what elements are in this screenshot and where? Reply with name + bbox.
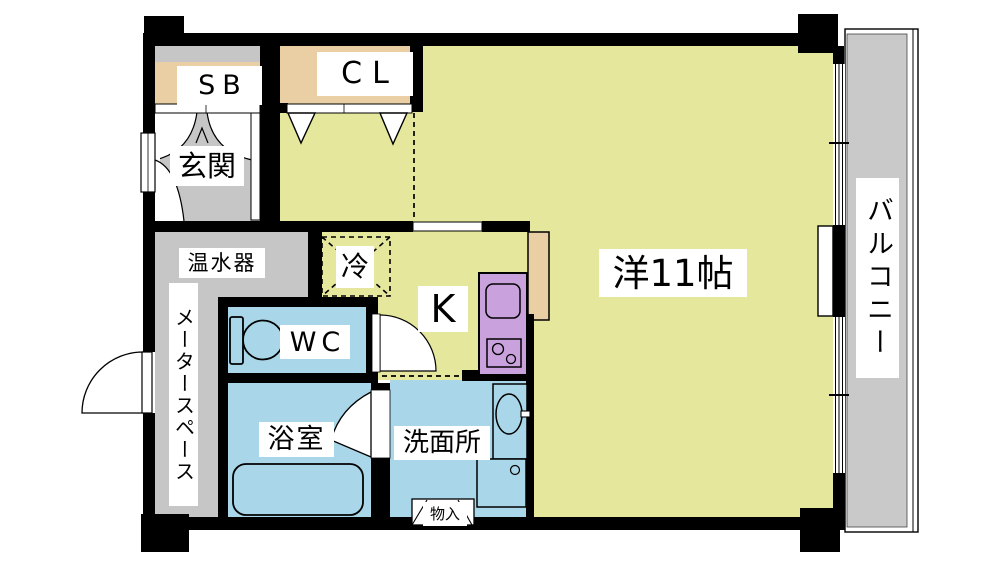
meter-door-swing-icon <box>82 352 152 413</box>
room-label-bathroom: 浴室 <box>259 422 334 457</box>
kitchen-counter <box>479 273 527 375</box>
shoebox-door-icon <box>155 104 260 113</box>
room-label-shoe-box: SB <box>177 66 262 105</box>
room-label-closet: CL <box>317 52 413 96</box>
room-label-balcony: バルコニー <box>856 178 899 378</box>
room-label-toilet: WC <box>280 325 350 359</box>
room-label-storage: 物入 <box>423 502 467 526</box>
room-label-western-room: 洋11帖 <box>599 249 747 297</box>
floorplan-drawing <box>0 0 1000 562</box>
kitchen-sink-icon <box>486 284 520 318</box>
room-label-washroom: 洗面所 <box>394 426 490 460</box>
washer-pan-icon <box>477 459 526 507</box>
kitchen-window-icon <box>413 222 482 231</box>
room-label-meter-space: メータースペース <box>169 283 198 506</box>
stove-icon <box>487 339 521 367</box>
room-label-entrance: 玄関 <box>170 146 244 186</box>
bathtub-icon <box>233 464 363 515</box>
room-label-refrigerator: 冷 <box>336 246 374 288</box>
room-label-water-heater: 温水器 <box>179 248 265 278</box>
room-label-kitchen: K <box>418 286 468 332</box>
floorplan: SB CL 玄関 温水器 メータースペース 冷 K WC 浴室 洗面所 物入 洋… <box>0 0 1000 562</box>
washbasin-icon <box>493 384 530 459</box>
